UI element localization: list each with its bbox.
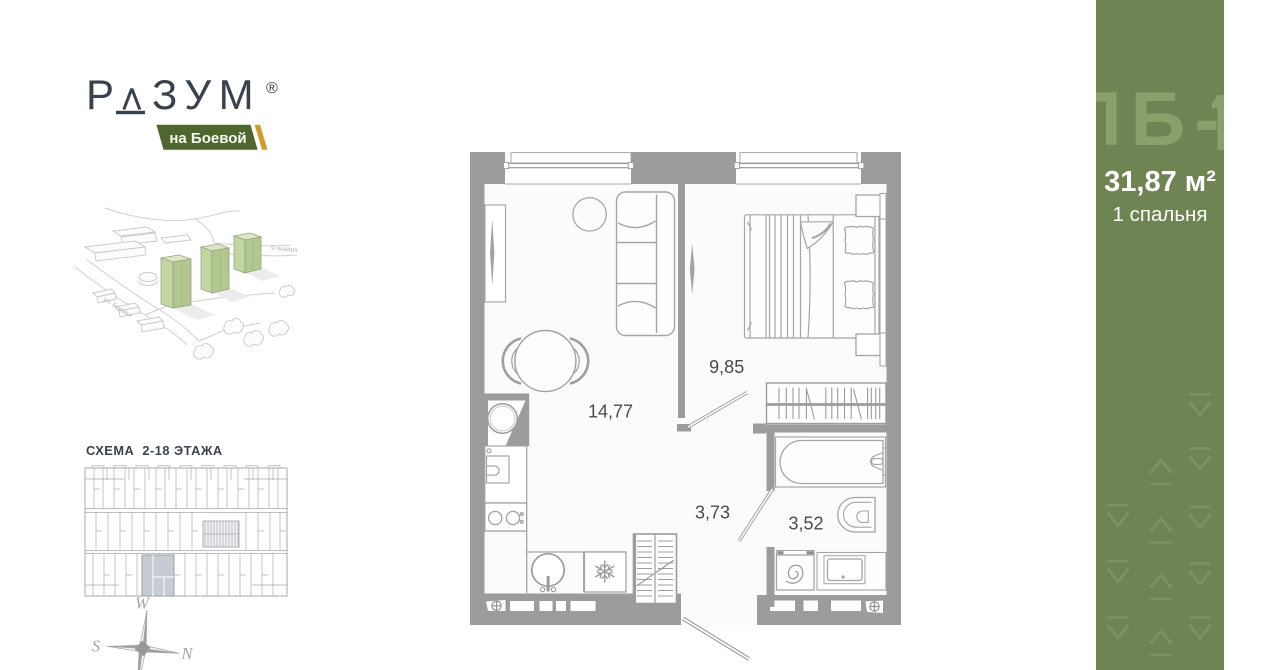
svg-text:9,85: 9,85 (709, 357, 744, 377)
svg-text:9 января: 9 января (271, 245, 298, 254)
svg-text:3,73: 3,73 (695, 503, 730, 523)
svg-text:на Боевой: на Боевой (169, 130, 246, 147)
svg-text:S: S (92, 637, 100, 656)
svg-text:3,52: 3,52 (788, 514, 823, 534)
svg-text:N: N (180, 644, 193, 663)
svg-text:W: W (135, 595, 150, 613)
svg-text:14,77: 14,77 (588, 402, 633, 422)
